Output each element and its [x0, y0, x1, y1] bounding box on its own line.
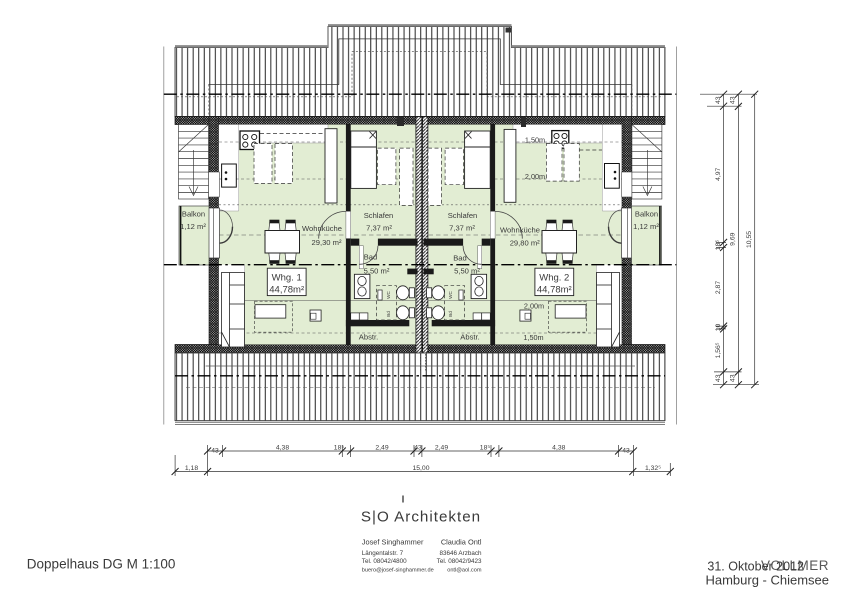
svg-text:Abstr.: Abstr.	[359, 333, 378, 342]
svg-text:44,78m²: 44,78m²	[537, 285, 572, 296]
svg-text:1,12 m²: 1,12 m²	[180, 222, 206, 231]
svg-text:1,56⁵: 1,56⁵	[715, 342, 722, 358]
svg-text:Bad: Bad	[453, 254, 467, 263]
svg-text:Josef Singhammer: Josef Singhammer	[362, 538, 424, 547]
svg-text:Balkon: Balkon	[182, 210, 205, 219]
svg-text:buero@josef-singhammer.de: buero@josef-singhammer.de	[362, 568, 434, 574]
svg-text:WC: WC	[386, 290, 391, 298]
svg-text:43: 43	[715, 96, 722, 104]
svg-text:2,00m: 2,00m	[524, 302, 544, 311]
svg-text:Tel. 08042/9423: Tel. 08042/9423	[437, 558, 482, 565]
svg-text:7,37 m²: 7,37 m²	[449, 224, 475, 233]
svg-text:Doppelhaus DG M 1:100: Doppelhaus DG M 1:100	[27, 557, 176, 572]
svg-text:43: 43	[715, 374, 722, 382]
svg-text:1,12 m²: 1,12 m²	[633, 222, 659, 231]
svg-text:Bad: Bad	[364, 253, 378, 262]
svg-text:Wohnküche: Wohnküche	[500, 226, 540, 235]
svg-text:18⁵: 18⁵	[715, 240, 722, 251]
svg-text:Whg. 2: Whg. 2	[539, 273, 569, 284]
svg-text:2,49: 2,49	[435, 445, 448, 452]
svg-text:29,30 m²: 29,30 m²	[312, 238, 342, 247]
svg-text:43: 43	[211, 448, 219, 455]
svg-text:18⁵: 18⁵	[480, 445, 491, 452]
svg-text:Claudia Ontl: Claudia Ontl	[441, 538, 482, 547]
svg-text:Wohnküche: Wohnküche	[302, 224, 342, 233]
svg-text:9,69: 9,69	[730, 232, 737, 245]
svg-text:4,97: 4,97	[715, 167, 722, 180]
svg-text:7,37 m²: 7,37 m²	[366, 224, 392, 233]
svg-text:1,32⁵: 1,32⁵	[645, 465, 661, 472]
svg-text:Längentalstr. 7: Längentalstr. 7	[362, 550, 404, 557]
svg-text:4,38: 4,38	[552, 445, 565, 452]
svg-text:5,50 m²: 5,50 m²	[454, 267, 480, 276]
svg-text:2,00m: 2,00m	[525, 172, 545, 181]
svg-text:Whg. 1: Whg. 1	[272, 273, 302, 284]
svg-text:S|O Architekten: S|O Architekten	[361, 509, 481, 526]
svg-text:15,00: 15,00	[412, 465, 429, 472]
svg-text:2,87: 2,87	[715, 281, 722, 294]
svg-text:Bd: Bd	[448, 311, 453, 317]
svg-text:Balkon: Balkon	[635, 210, 658, 219]
svg-text:1,18: 1,18	[185, 465, 198, 472]
svg-text:10: 10	[715, 324, 722, 332]
svg-text:43: 43	[622, 448, 630, 455]
svg-text:WC: WC	[448, 290, 453, 298]
svg-text:10,55: 10,55	[746, 231, 753, 248]
svg-text:1,50m: 1,50m	[525, 136, 545, 145]
svg-text:Schlafen: Schlafen	[448, 211, 478, 220]
svg-text:Bd: Bd	[386, 311, 391, 317]
svg-text:1,50m: 1,50m	[523, 333, 543, 342]
svg-text:5,50 m²: 5,50 m²	[364, 267, 390, 276]
svg-text:Tel. 08042/4800: Tel. 08042/4800	[362, 558, 407, 565]
svg-text:43: 43	[730, 96, 737, 104]
svg-text:2,49: 2,49	[375, 445, 388, 452]
svg-text:43: 43	[414, 445, 422, 452]
svg-text:ontl@aol.com: ontl@aol.com	[447, 568, 482, 574]
svg-text:18⁵: 18⁵	[334, 445, 345, 452]
svg-text:29,80 m²: 29,80 m²	[510, 239, 540, 248]
svg-text:Schlafen: Schlafen	[364, 211, 394, 220]
svg-text:Hamburg - Chiemsee: Hamburg - Chiemsee	[705, 573, 829, 588]
svg-text:44,78m²: 44,78m²	[269, 285, 304, 296]
svg-text:4,38: 4,38	[276, 445, 289, 452]
svg-text:VOLLMER: VOLLMER	[761, 558, 829, 573]
svg-text:83646 Arzbach: 83646 Arzbach	[439, 550, 482, 557]
svg-text:Abstr.: Abstr.	[460, 333, 479, 342]
svg-text:43: 43	[730, 374, 737, 382]
